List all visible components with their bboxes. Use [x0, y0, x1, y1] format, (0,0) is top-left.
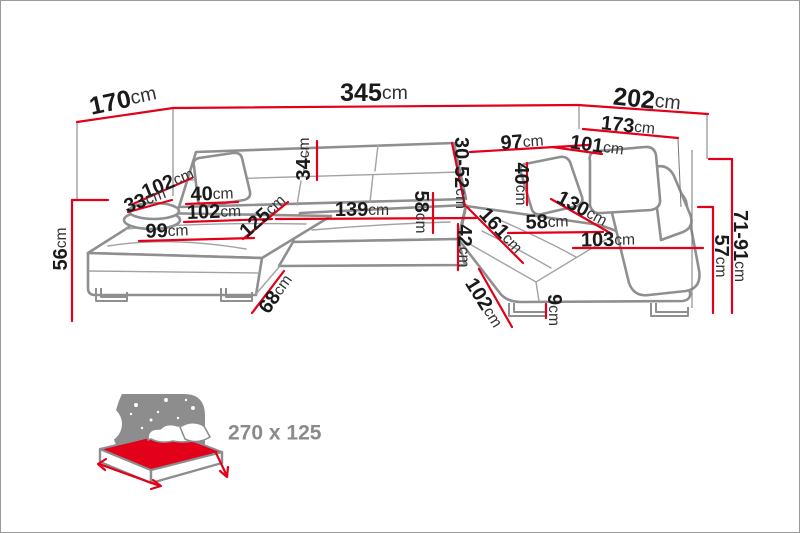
- sofa-dimension-diagram: 170cm 345cm 202cm 173cm 97cm 101cm 30-52…: [0, 0, 800, 533]
- moon-shape: [84, 405, 122, 443]
- dim-label-40cm-right: 40cm: [510, 162, 532, 205]
- dim-label-97cm: 97cm: [500, 130, 544, 155]
- foot-right-inner: [509, 303, 546, 316]
- dim-label-34cm: 34cm: [293, 137, 315, 180]
- sleeping-size-label: 270 x 125: [228, 422, 322, 445]
- foot-right-front: [651, 303, 688, 316]
- left-chaise-front: [88, 253, 262, 295]
- dim-label-58cm-center: 58cm: [410, 190, 432, 233]
- dim-label-103cm: 103cm: [581, 229, 636, 252]
- dim-label-173cm: 173cm: [600, 112, 656, 140]
- storage-bed-icon: 270 x 125: [84, 394, 322, 489]
- bed-blanket: [180, 423, 210, 442]
- dim-label-139cm: 139cm: [335, 199, 389, 221]
- dim-label-9cm: 9cm: [543, 294, 565, 326]
- dim-label-56cm: 56cm: [50, 227, 72, 270]
- diagram-canvas: 170cm 345cm 202cm 173cm 97cm 101cm 30-52…: [0, 0, 800, 533]
- center-front-panel: [279, 239, 465, 266]
- dim-label-68cm: 68cm: [254, 270, 297, 318]
- dim-label-30-52cm: 30-52cm: [450, 137, 472, 209]
- dim-label-42cm: 42cm: [453, 224, 475, 267]
- dim-label-345cm: 345cm: [340, 79, 408, 107]
- dim-label-57cm: 57cm: [710, 234, 732, 277]
- dim-label-202cm: 202cm: [612, 83, 682, 118]
